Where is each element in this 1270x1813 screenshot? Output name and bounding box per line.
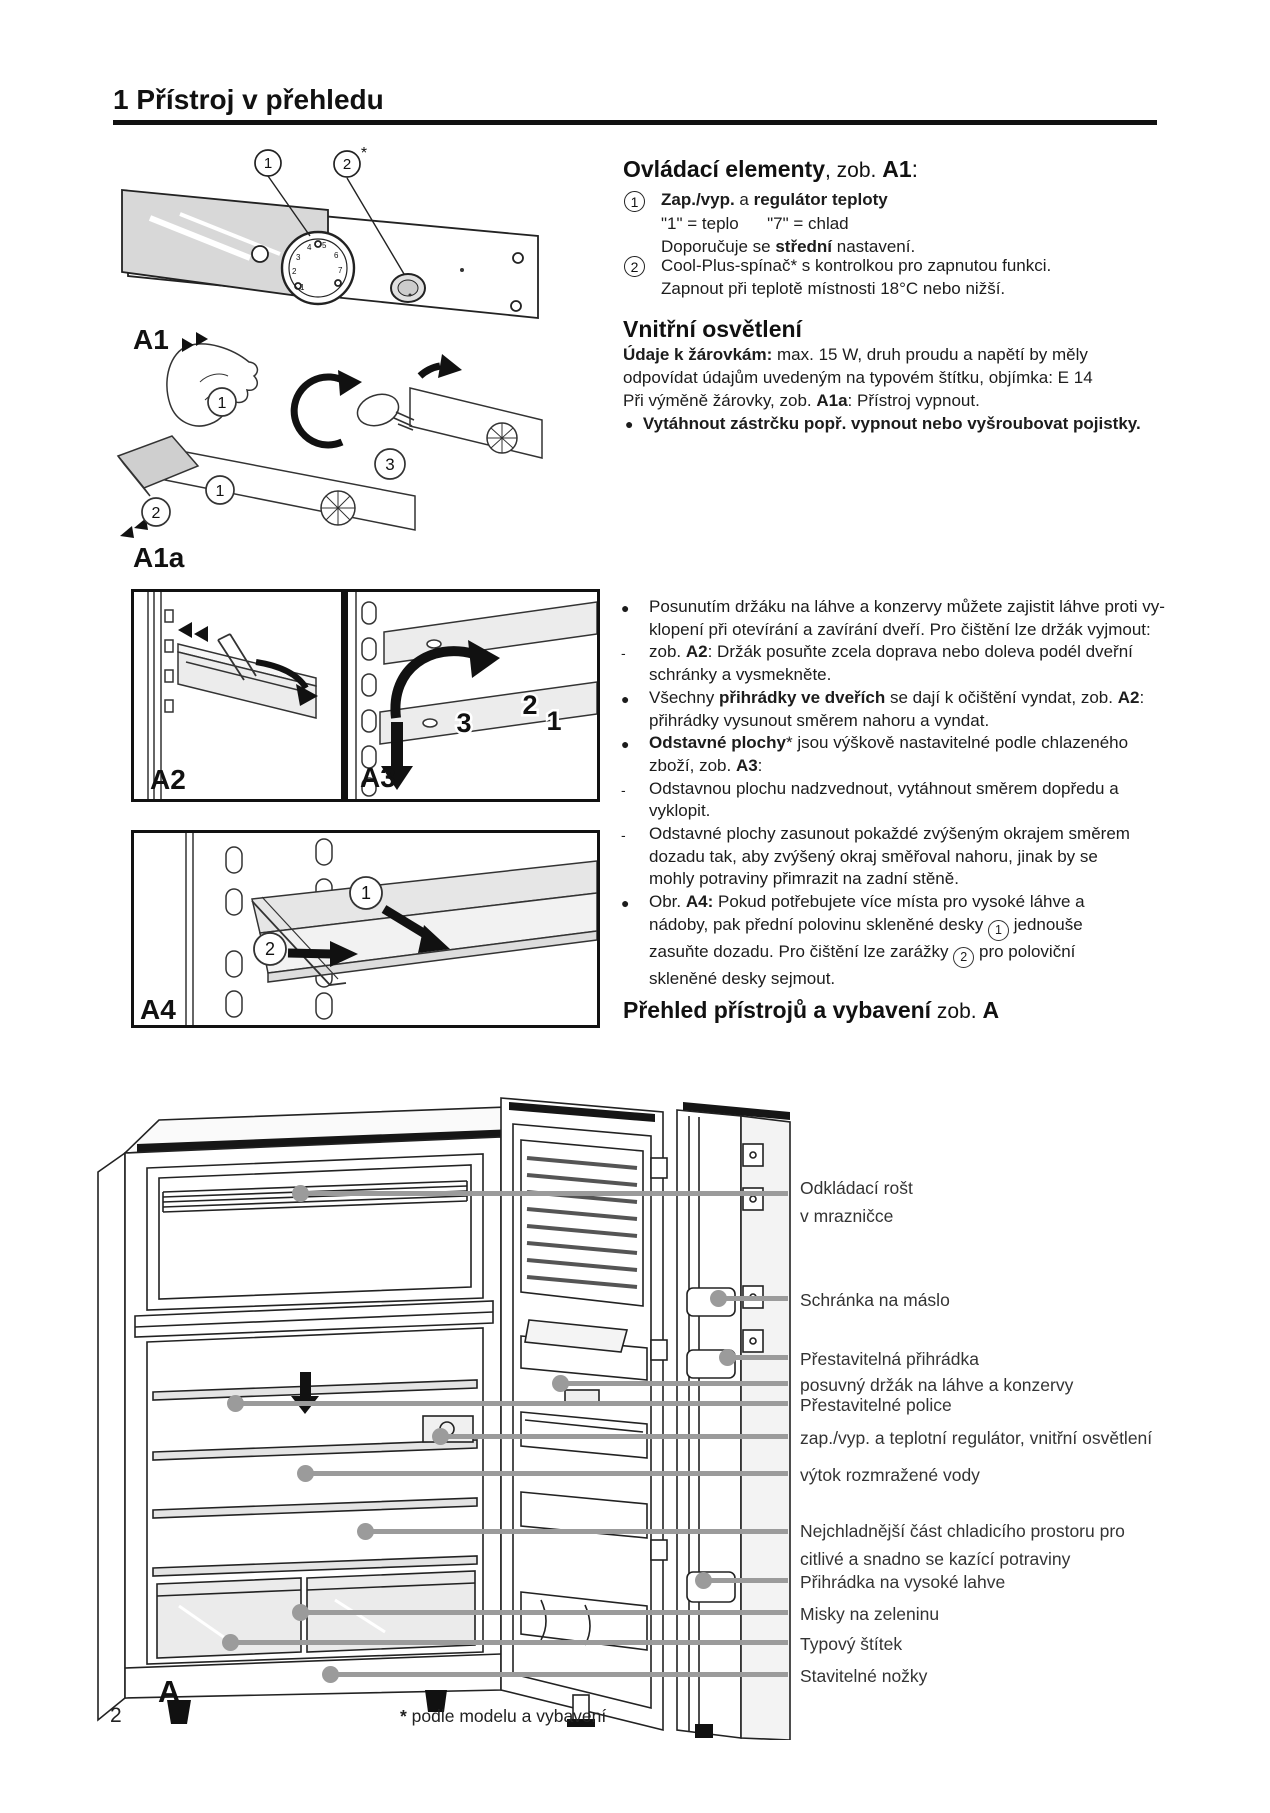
- dial-number: 6: [334, 251, 339, 260]
- callout-dot: [322, 1666, 339, 1683]
- inline-circle-1: 1: [988, 920, 1009, 941]
- figure-a1a-label: A1a: [133, 542, 184, 574]
- callout-line: [235, 1401, 788, 1406]
- callout-line: [727, 1355, 788, 1360]
- footnote: * podle modelu a vybavení: [400, 1706, 606, 1727]
- controls-item2-line1: Cool-Plus-spínač* s kontrolkou pro zapnu…: [661, 254, 1051, 277]
- callout-line: [330, 1672, 788, 1677]
- callout-dot: [297, 1465, 314, 1482]
- tip-item: - Odstavnou plochu nadzvednout, vytáhnou…: [621, 778, 1165, 823]
- tip-item: ● Obr. A4: Pokud potřebujete více místa …: [621, 891, 1165, 990]
- figure-a2-label: A2: [150, 764, 186, 796]
- callout-label-adjustable-bin: Přestavitelná přihrádka: [800, 1345, 979, 1373]
- callout-label-shelves: Přestavitelné police: [800, 1391, 952, 1419]
- callout-label-thermostat: zap./vyp. a teplotní regulátor, vnitřní …: [800, 1424, 1152, 1452]
- callout-label-freezer-rack: Odkládací rošt v mrazničce: [800, 1174, 913, 1230]
- a3-step-2: 2: [522, 690, 537, 720]
- callout-line: [365, 1529, 788, 1534]
- figure-a-drawing: [95, 1040, 795, 1740]
- a3-step-1: 1: [546, 706, 561, 736]
- callout-line: [718, 1296, 788, 1301]
- callout-dot: [292, 1604, 309, 1621]
- callout-dot: [292, 1185, 309, 1202]
- a4-num-2: 2: [265, 939, 275, 959]
- bullet-icon: ●: [621, 596, 649, 641]
- bullet-icon: ●: [621, 687, 649, 732]
- dial-number: 5: [322, 241, 327, 250]
- dash-icon: -: [621, 641, 649, 686]
- lighting-line3: Při výměně žárovky, zob. A1a: Přístroj v…: [623, 389, 980, 412]
- dial-number: 7: [338, 266, 343, 275]
- callout-dot: [227, 1395, 244, 1412]
- controls-item1-marker: 1: [624, 191, 645, 212]
- callout-1: 1: [264, 155, 272, 172]
- overview-heading: Přehled přístrojů a vybavení zob. A: [623, 997, 999, 1024]
- figure-a4: 1 2: [131, 830, 600, 1028]
- callout-dot: [357, 1523, 374, 1540]
- dash-icon: -: [621, 778, 649, 823]
- callout-dot: [719, 1349, 736, 1366]
- callout-label-feet: Stavitelné nožky: [800, 1662, 927, 1690]
- tip-item: ● Odstavné plochy* jsou výškově nastavit…: [621, 732, 1165, 777]
- callout-line: [440, 1434, 788, 1439]
- figure-a1-drawing: 1 2 3 4 5 6 7 1 2 *: [110, 140, 550, 340]
- figure-a1a-drawing: 1 1 2 3: [110, 330, 550, 540]
- bullet-icon: ●: [621, 891, 649, 990]
- callout-dot: [710, 1290, 727, 1307]
- step-1b: 1: [216, 483, 225, 500]
- tips-list: ● Posunutím držáku na láhve a konzervy m…: [621, 596, 1165, 990]
- footnote-star: *: [400, 1706, 407, 1726]
- dial-number: 1: [300, 283, 305, 292]
- bullet-icon: ●: [621, 732, 649, 777]
- callout-dot: [695, 1572, 712, 1589]
- tip-item: ● Posunutím držáku na láhve a konzervy m…: [621, 596, 1165, 641]
- dial-number: 3: [296, 253, 301, 262]
- tip-item: - zob. A2: Držák posuňte zcela doprava n…: [621, 641, 1165, 686]
- controls-item1-line1: Zap./vyp. a regulátor teploty: [661, 188, 888, 211]
- lighting-bullet: ● Vytáhnout zástrčku popř. vypnout nebo …: [625, 412, 1141, 436]
- callout-dot: [222, 1634, 239, 1651]
- step-1: 1: [218, 395, 227, 412]
- callout-dot: [432, 1428, 449, 1445]
- callout-line: [300, 1191, 788, 1196]
- figure-a4-drawing: 1 2: [134, 833, 597, 1025]
- tip-item: - Odstavné plochy zasunout pokaždé zvýše…: [621, 823, 1165, 891]
- dial-number: 2: [292, 267, 297, 276]
- controls-item2-marker: 2: [624, 256, 645, 277]
- figure-a-label: A: [158, 1674, 180, 1710]
- lighting-line2: odpovídat údajům uvedeným na typovém ští…: [623, 366, 1093, 389]
- step-2: 2: [152, 505, 161, 522]
- lighting-line1: Údaje k žárovkám: max. 15 W, druh proudu…: [623, 343, 1088, 366]
- callout-line: [560, 1381, 788, 1386]
- callout-2: 2: [343, 156, 351, 173]
- figure-a1a: 1 1 2 3: [110, 330, 550, 540]
- figure-a1: 1 2 3 4 5 6 7 1 2 *: [110, 140, 550, 340]
- tip-item: ● Všechny přihrádky ve dveřích se dají k…: [621, 687, 1165, 732]
- title-rule: [113, 120, 1157, 125]
- callout-line: [703, 1578, 788, 1583]
- bullet-icon: ●: [625, 416, 633, 432]
- controls-heading: Ovládací elementy, zob. A1:: [623, 156, 918, 183]
- callout-line: [230, 1640, 788, 1645]
- page-title: 1 Přístroj v přehledu: [113, 84, 384, 116]
- figure-a3-label: A3: [360, 762, 396, 794]
- controls-heading-bold: Ovládací elementy: [623, 156, 825, 182]
- figure-a: [95, 1040, 795, 1740]
- inline-circle-2: 2: [953, 947, 974, 968]
- step-3: 3: [385, 455, 394, 474]
- figure-a4-label: A4: [140, 994, 176, 1026]
- controls-item2-line2: Zapnout při teplotě místnosti 18°C nebo …: [661, 277, 1005, 300]
- callout-label-vegetable-bins: Misky na zeleninu: [800, 1600, 939, 1628]
- callout-label-defrost-water: výtok rozmražené vody: [800, 1461, 980, 1489]
- callout-dot: [552, 1375, 569, 1392]
- callout-2-star: *: [361, 145, 367, 162]
- callout-label-tall-bottles: Přihrádka na vysoké lahve: [800, 1568, 1005, 1596]
- callout-line: [305, 1471, 788, 1476]
- page-number: 2: [110, 1704, 122, 1728]
- a3-step-3: 3: [456, 708, 471, 738]
- callout-line: [300, 1610, 788, 1615]
- dash-icon: -: [621, 823, 649, 891]
- controls-item1-line2: "1" = teplo "7" = chlad: [661, 212, 849, 235]
- a4-num-1: 1: [361, 883, 371, 903]
- callout-label-coldest-zone: Nejchladnější část chladicího prostoru p…: [800, 1517, 1125, 1573]
- lighting-heading: Vnitřní osvětlení: [623, 316, 802, 343]
- callout-label-type-plate: Typový štítek: [800, 1630, 902, 1658]
- callout-label-butter-box: Schránka na máslo: [800, 1286, 950, 1314]
- dial-number: 4: [307, 243, 312, 252]
- manual-page: 1 Přístroj v přehledu: [0, 0, 1270, 1813]
